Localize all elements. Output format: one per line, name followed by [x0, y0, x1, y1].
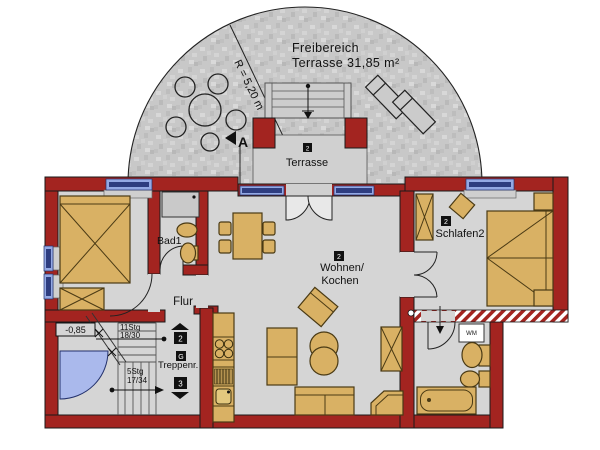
wall-right: [553, 177, 568, 322]
window-terrace-right-glass: [336, 188, 372, 193]
pillow-block: [534, 290, 553, 306]
window-top-left-glass: [109, 182, 149, 187]
dining-table: [233, 213, 262, 259]
window-schlafen2-glass: [469, 182, 511, 187]
wall-bedroom-bad1: [148, 191, 160, 274]
bath-toilet: [461, 371, 480, 387]
elevation-label: -0,85: [65, 325, 86, 335]
room-label-wohnen-line1: Wohnen/: [320, 262, 365, 274]
washing-machine-label: WM: [466, 331, 477, 337]
lower-flight-ratio: 17/34: [127, 376, 148, 385]
svg-text:3: 3: [178, 380, 183, 389]
svg-text:2: 2: [337, 254, 341, 261]
freibereich-label-line2: Terrasse 31,85 m²: [292, 56, 400, 70]
wall-left: [45, 177, 58, 428]
svg-text:2: 2: [444, 219, 448, 226]
room-label-terrasse: Terrasse: [286, 157, 328, 169]
freibereich-label-line1: Freibereich: [292, 41, 359, 55]
opening-bathroom-door: [421, 311, 455, 321]
room-label-treppenraum: Treppenr.: [158, 360, 198, 371]
window-left-2-glass: [46, 277, 51, 296]
opening-schlafen2-door: [400, 252, 414, 297]
dining-chair: [219, 222, 231, 235]
floor-plan: R = 5,20 m Freibereich Terrasse 31,85 m²: [0, 0, 600, 450]
kitchen: [213, 313, 234, 422]
dining-chair: [263, 222, 275, 235]
window-terrace-left-glass: [242, 188, 282, 193]
bed1: [60, 196, 130, 283]
bath-sink: [462, 343, 482, 368]
room-label-wohnen-line2: Kochen: [321, 275, 358, 287]
wall-wohnen-east-upper: [400, 191, 414, 252]
wall-junction-marker: [408, 310, 414, 316]
wall-bottom: [45, 415, 503, 428]
sill-schlafen2: [464, 190, 516, 198]
garden-steps: [265, 83, 351, 119]
room-label-schlafen2: Schlafen2: [436, 228, 485, 240]
section-marker-label: A: [238, 134, 248, 150]
wall-bad1-bottom: [183, 265, 208, 275]
pillow-block: [534, 193, 553, 210]
wall-bedroom-bottom: [45, 310, 165, 322]
svg-text:2: 2: [306, 146, 310, 153]
lower-flight-steps: 5Stg: [127, 367, 143, 376]
wall-bathroom-right: [490, 322, 503, 428]
terrace-post-right: [345, 118, 367, 148]
opening-bedroom-door: [148, 274, 160, 312]
upper-flight-ratio: 18/30: [120, 331, 141, 340]
window-left-1-glass: [46, 249, 51, 268]
svg-text:2: 2: [178, 335, 183, 344]
room-label-bad1: Bad1: [157, 235, 182, 247]
room-label-flur: Flur: [173, 296, 193, 308]
bad1-toilet: [181, 243, 196, 263]
dining-chair: [263, 240, 275, 253]
opening-flur-wohnen: [196, 275, 208, 308]
terrace-post-left: [253, 118, 275, 148]
bath-toilet-tank: [479, 371, 490, 387]
opening-terrace-door: [286, 184, 332, 196]
wall-kitchen-stub: [200, 308, 213, 428]
coffee-table: [310, 347, 338, 375]
dining-chair: [219, 240, 231, 253]
